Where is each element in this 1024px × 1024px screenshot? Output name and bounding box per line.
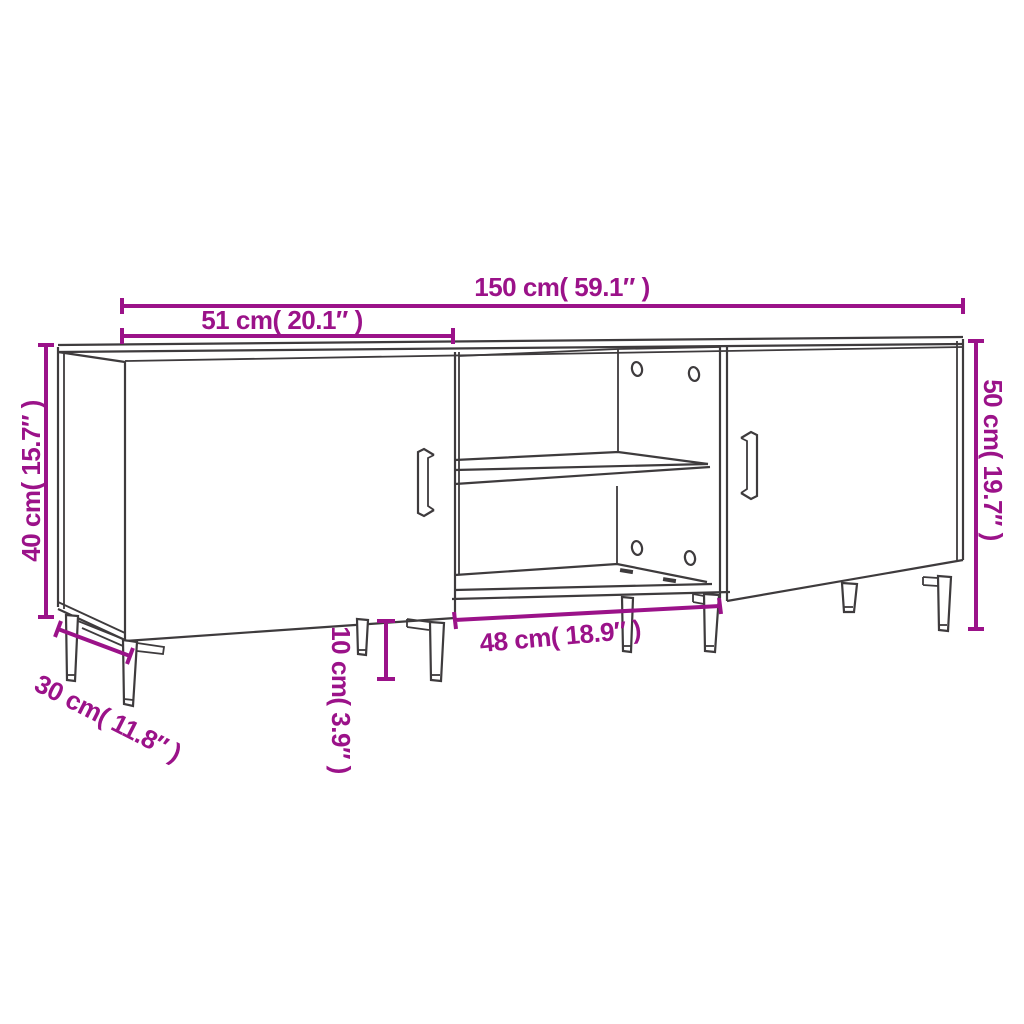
back-left-leg bbox=[66, 615, 78, 681]
right-door bbox=[727, 339, 963, 601]
left-side-panel bbox=[58, 347, 125, 640]
front-left-leg bbox=[123, 640, 164, 706]
front-mid-left-leg bbox=[407, 619, 444, 681]
open-compartment bbox=[452, 346, 730, 601]
cabinet-top-panel bbox=[58, 337, 963, 361]
dimension-left-section-width-label: 51 cm( 20.1″ ) bbox=[201, 305, 363, 335]
bottom-shelf bbox=[452, 564, 730, 599]
back-mid-left-leg bbox=[357, 619, 368, 655]
dimension-overall-width-label: 150 cm( 59.1″ ) bbox=[474, 272, 650, 302]
dimension-left-body-height: 40 cm( 15.7″ ) bbox=[16, 345, 54, 617]
dimension-leg-height-label: 10 cm( 3.9″ ) bbox=[326, 626, 356, 774]
dimension-left-body-height-label: 40 cm( 15.7″ ) bbox=[16, 400, 46, 562]
left-door bbox=[125, 352, 455, 641]
front-right-leg bbox=[923, 576, 951, 631]
dimension-left-section-width: 51 cm( 20.1″ ) bbox=[122, 305, 453, 344]
dimension-overall-height: 50 cm( 19.7″ ) bbox=[968, 341, 1008, 629]
middle-shelf bbox=[455, 452, 710, 484]
dimension-middle-compartment-width-label: 48 cm( 18.9″ ) bbox=[478, 614, 642, 658]
dimension-depth-label: 30 cm( 11.8″ ) bbox=[30, 668, 186, 767]
tv-cabinet-diagram-canvas: 150 cm( 59.1″ ) 51 cm( 20.1″ ) 40 cm( 15… bbox=[0, 0, 1024, 1024]
dimension-overall-height-label: 50 cm( 19.7″ ) bbox=[978, 379, 1008, 541]
dimension-diagram: 150 cm( 59.1″ ) 51 cm( 20.1″ ) 40 cm( 15… bbox=[0, 0, 1024, 1024]
dimension-middle-compartment-width: 48 cm( 18.9″ ) bbox=[454, 598, 721, 658]
front-mid-right-leg bbox=[693, 594, 719, 652]
back-right-leg bbox=[842, 583, 857, 612]
right-door-handle bbox=[741, 432, 757, 499]
left-door-handle bbox=[418, 449, 434, 516]
dimension-depth: 30 cm( 11.8″ ) bbox=[30, 621, 186, 768]
